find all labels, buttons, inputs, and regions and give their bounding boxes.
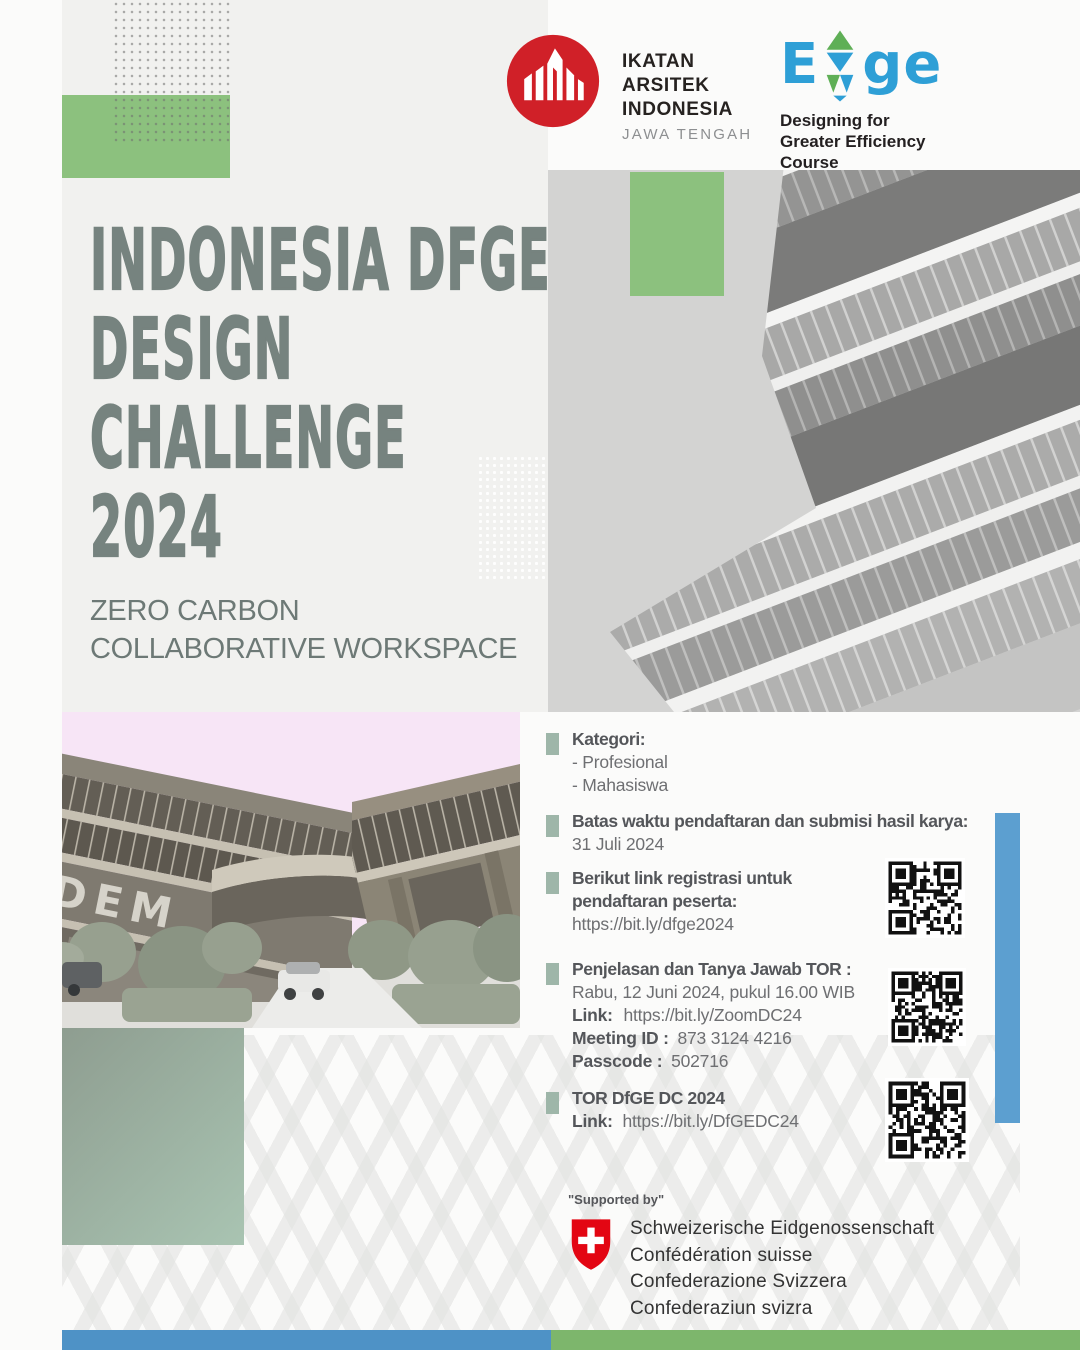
title-line-2: DESIGN (90, 305, 551, 394)
swiss-confederation-icon (569, 1216, 613, 1274)
bottom-bar-green (551, 1330, 1080, 1350)
edge-logo: E ge Designing for Greater Efficiency Co… (780, 34, 942, 173)
section-deadline: Batas waktu pendaftaran dan submisi hasi… (572, 810, 968, 856)
tor-session-passcode-label: Passcode : (572, 1051, 662, 1071)
edge-diamond-icon (820, 24, 860, 108)
edge-tagline-2: Greater Efficiency (780, 131, 942, 152)
qr-code-registration (885, 858, 965, 938)
tor-session-heading: Penjelasan dan Tanya Jawab TOR : (572, 958, 855, 981)
iai-line3: INDONESIA (622, 98, 752, 122)
tor-doc-link-url[interactable]: https://bit.ly/DfGEDC24 (622, 1111, 798, 1131)
sage-rectangle-bottom-left (62, 1028, 244, 1245)
registration-heading-1: Berikut link registrasi untuk (572, 867, 792, 890)
tor-session-meeting-line: Meeting ID : 873 3124 4216 (572, 1027, 855, 1050)
swiss-line-1: Schweizerische Eidgenossenschaft (630, 1216, 934, 1243)
blue-vertical-bar (995, 813, 1020, 1123)
subtitle-line-1: ZERO CARBON (90, 592, 517, 630)
qr-code-zoom-meeting (888, 968, 966, 1046)
page-subtitle: ZERO CARBON COLLABORATIVE WORKSPACE (90, 592, 517, 668)
supported-by-label: "Supported by" (568, 1192, 664, 1207)
bullet-tor-doc (546, 1092, 559, 1114)
poster: DEM (0, 0, 1080, 1350)
building-photo (548, 170, 1080, 712)
tor-session-link-line: Link: https://bit.ly/ZoomDC24 (572, 1004, 855, 1027)
tor-session-meeting-id: 873 3124 4216 (677, 1028, 791, 1048)
swiss-line-2: Confédération suisse (630, 1243, 934, 1270)
swiss-line-4: Confederaziun svizra (630, 1296, 934, 1323)
tor-doc-link-label: Link: (572, 1111, 613, 1131)
subtitle-line-2: COLLABORATIVE WORKSPACE (90, 630, 517, 668)
deadline-date: 31 Juli 2024 (572, 833, 968, 856)
section-tor-session: Penjelasan dan Tanya Jawab TOR : Rabu, 1… (572, 958, 855, 1073)
tor-session-meeting-label: Meeting ID : (572, 1028, 669, 1048)
building-photo-graphic (548, 170, 1080, 712)
section-tor-doc: TOR DfGE DC 2024 Link: https://bit.ly/Df… (572, 1087, 799, 1133)
green-rectangle-photo (630, 172, 724, 296)
kategori-item-profesional: - Profesional (572, 751, 668, 774)
swiss-confederation-text: Schweizerische Eidgenossenschaft Confédé… (630, 1216, 934, 1322)
section-kategori: Kategori: - Profesional - Mahasiswa (572, 728, 668, 797)
qr-code-tor-document (885, 1078, 969, 1162)
tor-session-schedule: Rabu, 12 Juni 2024, pukul 16.00 WIB (572, 981, 855, 1004)
bullet-tor-session (546, 963, 559, 985)
iai-line1: IKATAN (622, 50, 752, 74)
tor-session-passcode-line: Passcode : 502716 (572, 1050, 855, 1073)
tor-doc-heading: TOR DfGE DC 2024 (572, 1087, 799, 1110)
tor-session-link-url[interactable]: https://bit.ly/ZoomDC24 (623, 1005, 801, 1025)
dot-pattern-top-left (112, 0, 230, 142)
title-line-4: 2024 (90, 483, 551, 572)
edge-wordmark: E ge (780, 34, 942, 106)
deadline-heading: Batas waktu pendaftaran dan submisi hasi… (572, 810, 968, 833)
tor-doc-link-line: Link: https://bit.ly/DfGEDC24 (572, 1110, 799, 1133)
edge-tagline-1: Designing for (780, 110, 942, 131)
swiss-shield-icon (569, 1216, 613, 1274)
section-registration: Berikut link registrasi untuk pendaftara… (572, 867, 792, 936)
bottom-bar-blue (62, 1330, 551, 1350)
architectural-render-graphic: DEM (62, 712, 520, 1028)
page-title: INDONESIA DFGE DESIGN CHALLENGE 2024 (90, 216, 551, 572)
registration-heading-2: pendaftaran peserta: (572, 890, 792, 913)
iai-region: JAWA TENGAH (622, 123, 752, 147)
tor-session-link-label: Link: (572, 1005, 613, 1025)
edge-letter-e: E (780, 34, 818, 96)
iai-logo-text: IKATAN ARSITEK INDONESIA JAWA TENGAH (622, 50, 752, 147)
iai-line2: ARSITEK (622, 74, 752, 98)
edge-tagline-3: Course (780, 152, 942, 173)
edge-tagline: Designing for Greater Efficiency Course (780, 110, 942, 173)
bullet-deadline (546, 815, 559, 837)
swiss-line-3: Confederazione Svizzera (630, 1269, 934, 1296)
kategori-heading: Kategori: (572, 728, 668, 751)
kategori-item-mahasiswa: - Mahasiswa (572, 774, 668, 797)
architectural-render: DEM (62, 712, 520, 1028)
registration-url[interactable]: https://bit.ly/dfge2024 (572, 913, 792, 936)
edge-letters-ge: ge (862, 34, 942, 96)
bullet-registration (546, 872, 559, 894)
iai-logo (505, 33, 601, 129)
bullet-kategori (546, 733, 559, 755)
tor-session-passcode: 502716 (671, 1051, 728, 1071)
iai-logo-icon (505, 33, 601, 129)
title-line-3: CHALLENGE (90, 394, 551, 483)
title-line-1: INDONESIA DFGE (90, 216, 551, 305)
